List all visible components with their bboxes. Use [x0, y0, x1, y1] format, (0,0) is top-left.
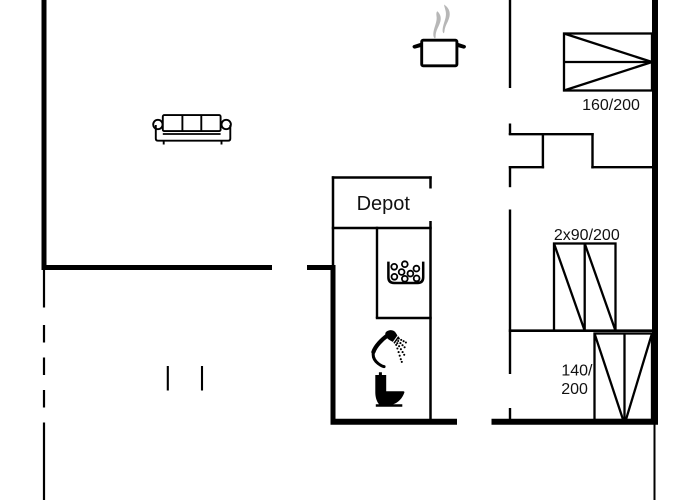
svg-text:160/200: 160/200	[582, 97, 640, 114]
svg-text:140/: 140/	[561, 363, 593, 380]
svg-text:200: 200	[561, 381, 588, 398]
svg-text:2x90/200: 2x90/200	[554, 227, 620, 244]
svg-text:Depot: Depot	[357, 193, 411, 215]
